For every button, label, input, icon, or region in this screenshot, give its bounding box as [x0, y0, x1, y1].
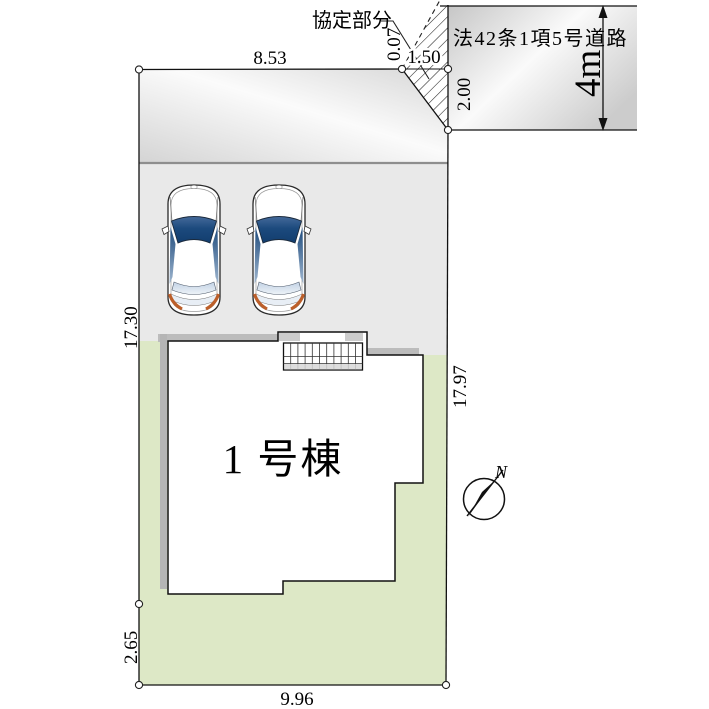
- car-icon-1: [162, 185, 226, 315]
- marker-agreement-west: [398, 65, 405, 72]
- building-shadow-left: [160, 334, 167, 589]
- canopy-shade-left: [279, 333, 300, 341]
- dim-top-width: 8.53: [253, 48, 286, 69]
- dim-agreement-depth: 2.00: [454, 78, 475, 111]
- dim-left-lower: 2.65: [121, 631, 142, 664]
- dim-right-side: 17.97: [450, 365, 471, 408]
- site-plan-drawing: N 8.53 0.07 1.50 2.00 17.30 17.97 2.65 9…: [0, 0, 709, 709]
- dim-left-upper: 17.30: [121, 306, 142, 349]
- agreement-label: 協定部分: [312, 9, 392, 32]
- marker-road-corner: [444, 126, 451, 133]
- north-label: N: [494, 462, 508, 482]
- dim-agreement-width: 1.50: [407, 47, 440, 68]
- road-width-label: 4m: [568, 50, 609, 98]
- dim-offset: 0.07: [384, 28, 405, 61]
- north-compass: N: [464, 462, 509, 520]
- marker-top-left: [135, 66, 142, 73]
- building-label: 1 号棟: [223, 436, 344, 482]
- lot-north-edge: [139, 69, 402, 70]
- marker-west-lower: [135, 600, 142, 607]
- marker-bottom-left: [135, 681, 142, 688]
- canopy-shade-right: [345, 333, 363, 341]
- porch-step-shade: [285, 364, 362, 370]
- building-shadow-top-right: [367, 348, 419, 355]
- dim-bottom-width: 9.96: [280, 689, 313, 709]
- marker-agreement-east: [444, 65, 451, 72]
- driveway-band: [139, 69, 448, 163]
- car-icon-2: [247, 185, 311, 315]
- marker-bottom-right: [442, 681, 449, 688]
- road-label: 法42条1項5号道路: [453, 27, 628, 50]
